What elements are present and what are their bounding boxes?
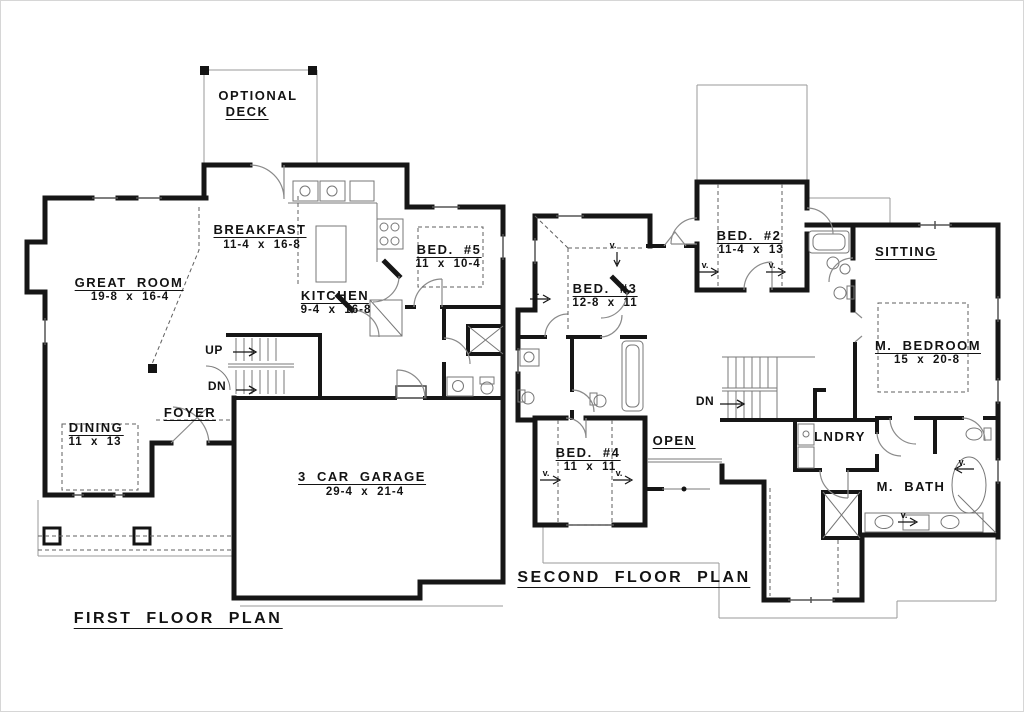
vault-marker: v.	[702, 261, 709, 270]
label-second-floor-bed2: BED. #2	[717, 229, 782, 244]
label-first-floor-foyer: FOYER	[164, 406, 216, 421]
label-first-floor-great-room-dims: 19-8 x 16-4	[91, 292, 169, 304]
label-second-floor-lndry: LNDRY	[814, 430, 866, 443]
label-first-floor-deck: DECK	[226, 105, 269, 120]
label-second-floor-bed4-dims: 11 x 11	[564, 462, 617, 474]
label-first-floor-kitchen: KITCHEN	[301, 289, 369, 304]
floor-plan-sheet: OPTIONALDECKBREAKFAST11-4 x 16-8KITCHEN9…	[0, 0, 1024, 712]
label-second-floor-m-bedroom: M. BEDROOM	[875, 339, 981, 354]
label-second-floor-title: SECOND FLOOR PLAN	[517, 570, 750, 588]
label-first-floor-bed5-dims: 11 x 10-4	[415, 259, 480, 271]
label-first-floor-title: FIRST FLOOR PLAN	[74, 611, 283, 629]
label-first-floor-up: UP	[205, 344, 223, 356]
label-second-floor-sitting: SITTING	[875, 245, 937, 260]
vault-marker: v.	[616, 469, 623, 478]
label-first-floor-great-room: GREAT ROOM	[75, 276, 184, 291]
label-second-floor-bed3-dims: 12-8 x 11	[572, 298, 637, 310]
label-first-floor-dn: DN	[208, 380, 226, 392]
vault-marker: v.	[959, 458, 966, 467]
label-first-floor-bed5: BED. #5	[417, 243, 482, 258]
vault-marker: v.	[533, 288, 540, 297]
vault-marker: v.	[901, 511, 908, 520]
label-second-floor-bed2-dims: 11-4 x 13	[718, 245, 783, 257]
label-second-floor-dn: DN	[696, 395, 714, 407]
label-first-floor-breakfast: BREAKFAST	[214, 223, 307, 238]
labels-layer: OPTIONALDECKBREAKFAST11-4 x 16-8KITCHEN9…	[0, 0, 1024, 712]
label-first-floor-garage-dims: 29-4 x 21-4	[326, 487, 404, 499]
label-first-floor-garage: 3 CAR GARAGE	[298, 470, 426, 485]
label-first-floor-breakfast-dims: 11-4 x 16-8	[223, 240, 301, 252]
label-first-floor-dining-dims: 11 x 13	[68, 437, 121, 449]
vault-marker: v.	[610, 241, 617, 250]
vault-marker: v.	[769, 261, 776, 270]
label-second-floor-open: OPEN	[653, 434, 696, 449]
label-second-floor-bed3: BED. #3	[573, 282, 638, 297]
label-second-floor-bed4: BED. #4	[556, 446, 621, 461]
label-second-floor-m-bath: M. BATH	[877, 480, 946, 493]
label-first-floor-dining: DINING	[69, 421, 124, 436]
label-first-floor-optional: OPTIONAL	[218, 89, 297, 102]
label-first-floor-kitchen-dims: 9-4 x 16-8	[301, 305, 372, 317]
label-second-floor-m-bedroom-dims: 15 x 20-8	[894, 355, 960, 367]
vault-marker: v.	[543, 469, 550, 478]
